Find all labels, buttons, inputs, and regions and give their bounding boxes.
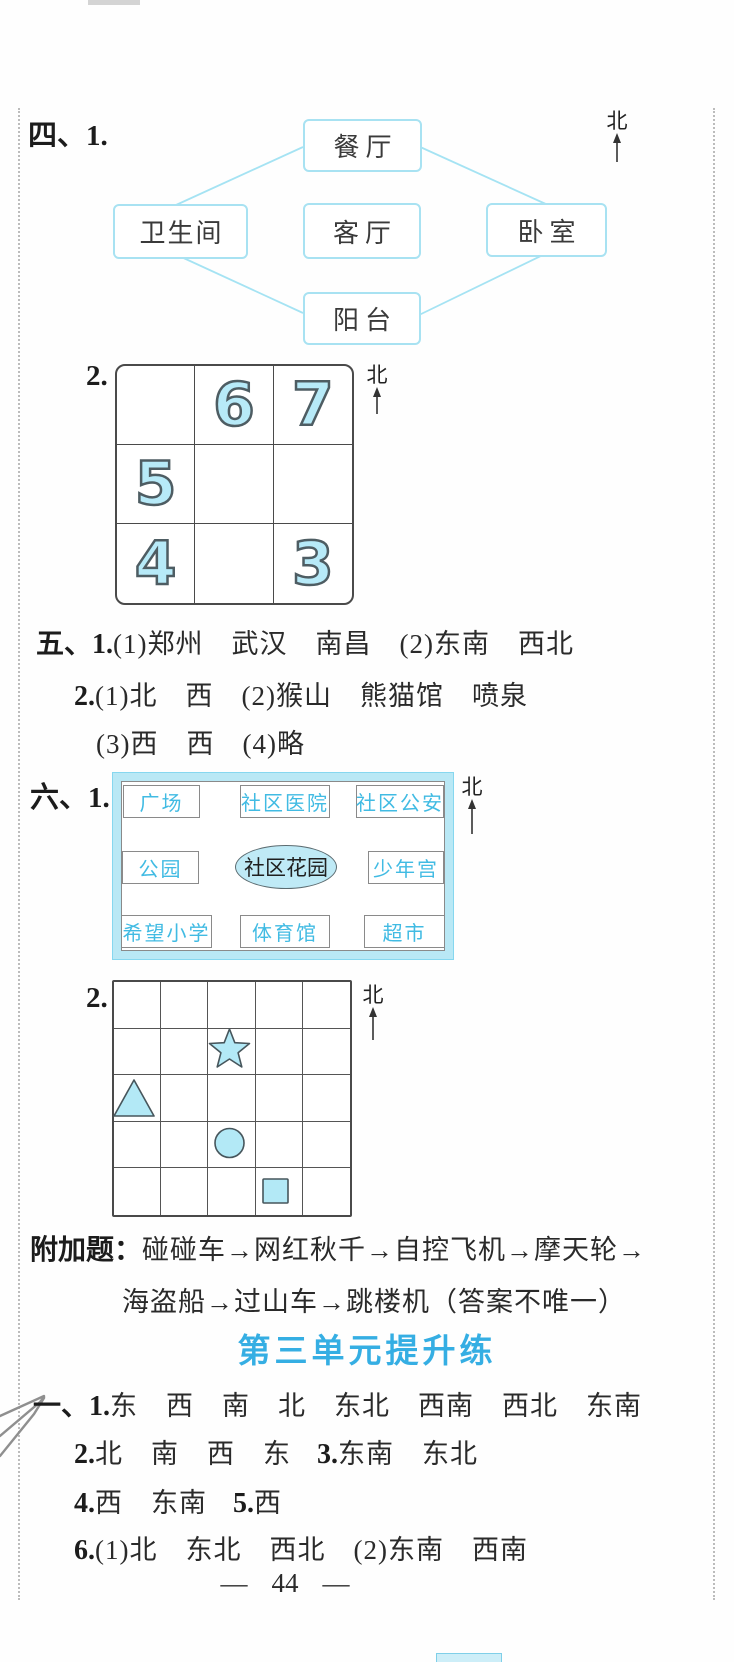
north-arrow-icon <box>365 1006 381 1042</box>
cell-value: 7 <box>292 375 334 435</box>
room-box-bedroom: 卧室 <box>486 203 607 257</box>
item2-label: 2. <box>86 360 108 393</box>
answer-line: 一、1.东 西 南 北 东北 西南 西北 东南 <box>33 1384 642 1424</box>
answer-line: 2.(1)北 西 (2)猴山 熊猫馆 喷泉 <box>74 674 528 713</box>
left-margin-dashed-line <box>18 108 20 1600</box>
map-place-gym: 体育馆 <box>240 915 330 948</box>
answer-number: 2. <box>74 1439 95 1470</box>
answer-text: (3)西 西 (4)略 <box>96 729 305 759</box>
compass-north-4: 北 <box>356 984 390 1042</box>
map-place-square: 广场 <box>123 785 200 818</box>
answer-text: 东南 东北 <box>338 1439 478 1469</box>
footer-dash-right: — <box>323 1568 350 1598</box>
grid-cell <box>303 1029 350 1076</box>
grid-cell <box>114 1075 161 1122</box>
place-label: 公园 <box>139 853 183 882</box>
answer-number: 一、1. <box>33 1391 110 1422</box>
map-place-police: 社区公安 <box>356 785 444 818</box>
compass-north-3: 北 <box>455 776 489 836</box>
map-place-supermarket: 超市 <box>364 915 445 948</box>
place-label: 体育馆 <box>252 917 318 946</box>
answer-line: 6.(1)北 东北 西北 (2)东南 西南 <box>74 1528 528 1567</box>
next-page-edge-artifact <box>436 1653 502 1662</box>
answer-line: 五、1.(1)郑州 武汉 南昌 (2)东南 西北 <box>36 622 574 662</box>
grid-cell: 7 <box>274 366 352 445</box>
map-place-youth-palace: 少年宫 <box>368 851 444 884</box>
grid-cell <box>303 1168 350 1215</box>
grid-cell: 4 <box>117 524 195 603</box>
room-label: 餐厅 <box>327 127 397 164</box>
room-label: 客厅 <box>327 213 397 250</box>
bonus-line-1: 附加题：碰碰车→网红秋千→自控飞机→摩天轮→ <box>30 1228 646 1268</box>
grid-cell <box>195 524 273 603</box>
grid-cell <box>114 982 161 1029</box>
grid-cell <box>161 1075 208 1122</box>
place-label: 广场 <box>140 787 184 816</box>
grid-cell <box>114 1029 161 1076</box>
answer-number: 3. <box>317 1439 338 1470</box>
grid-cell <box>117 366 195 445</box>
grid-cell <box>161 1122 208 1169</box>
answer-line: (3)西 西 (4)略 <box>96 722 305 761</box>
grid-cell <box>303 1075 350 1122</box>
place-label: 社区花园 <box>244 852 328 882</box>
cell-value: 4 <box>135 534 177 594</box>
answer-number: 4. <box>74 1488 95 1519</box>
unit3-heading: 第三单元提升练 <box>0 1324 734 1372</box>
grid-cell <box>303 982 350 1029</box>
grid-cell <box>256 1075 303 1122</box>
grid-cell <box>274 445 352 524</box>
bonus-line-2: 海盗船→过山车→跳楼机（答案不唯一） <box>122 1280 626 1319</box>
room-box-dining: 餐厅 <box>303 119 422 172</box>
answer-number: 五、1. <box>36 629 113 660</box>
place-label: 社区公安 <box>356 787 444 816</box>
answer-text: 东 西 南 北 东北 西南 西北 东南 <box>110 1391 642 1421</box>
answer-text: 西 <box>254 1488 282 1518</box>
grid-cell: 5 <box>117 445 195 524</box>
place-label: 超市 <box>383 917 427 946</box>
page-number: 44 <box>272 1568 299 1598</box>
grid-cell <box>256 1122 303 1169</box>
compass-north-1: 北 <box>600 110 634 164</box>
map-place-hospital: 社区医院 <box>240 785 330 818</box>
answer-text: 碰碰车→网红秋千→自控飞机→摩天轮→ <box>142 1235 646 1265</box>
north-arrow-icon <box>464 798 480 836</box>
grid-cell <box>208 1029 255 1076</box>
bonus-label: 附加题： <box>30 1235 142 1266</box>
right-margin-dashed-line <box>713 108 715 1600</box>
grid-cell <box>208 1168 255 1215</box>
grid-cell <box>114 1122 161 1169</box>
answer-text: (1)北 东北 西北 (2)东南 西南 <box>95 1535 528 1565</box>
map-place-park: 公园 <box>122 851 199 884</box>
room-label: 卧室 <box>511 212 581 249</box>
answer-line: 2.北 南 西 东3.东南 东北 <box>74 1432 478 1471</box>
answer-text: (1)郑州 武汉 南昌 (2)东南 西北 <box>113 629 574 659</box>
scan-smudge <box>88 0 140 5</box>
room-box-balcony: 阳台 <box>303 292 421 345</box>
grid-cell <box>161 1168 208 1215</box>
item2-label: 2. <box>86 982 108 1015</box>
north-label: 北 <box>462 776 483 798</box>
map-place-school: 希望小学 <box>121 915 212 948</box>
page-footer: —44— <box>60 1568 510 1599</box>
grid-cell <box>256 1029 303 1076</box>
north-arrow-icon <box>369 386 385 416</box>
cell-value: 5 <box>135 454 177 514</box>
north-label: 北 <box>607 110 628 132</box>
footer-dash-left: — <box>221 1568 248 1598</box>
shape-grid-5x5 <box>112 980 352 1217</box>
room-label: 阳台 <box>327 300 397 337</box>
answer-number: 6. <box>74 1535 95 1566</box>
grid-cell <box>208 1075 255 1122</box>
number-grid-3x3: 6 7 5 4 3 <box>115 364 354 605</box>
answer-key-page: 四、1. 餐厅 卫生间 客厅 卧室 阳台 北 2. 6 7 5 4 3 北 <box>0 0 734 1662</box>
grid-cell <box>195 445 273 524</box>
place-label: 社区医院 <box>241 787 329 816</box>
grid-cell: 3 <box>274 524 352 603</box>
answer-line: 4.西 东南5.西 <box>74 1481 282 1520</box>
grid-cell <box>256 982 303 1029</box>
room-box-bathroom: 卫生间 <box>113 204 248 259</box>
answer-text: (1)北 西 (2)猴山 熊猫馆 喷泉 <box>95 681 528 711</box>
cell-value: 3 <box>292 534 334 594</box>
answer-number: 2. <box>74 681 95 712</box>
north-label: 北 <box>363 984 384 1006</box>
grid-cell <box>161 982 208 1029</box>
grid-cell <box>161 1029 208 1076</box>
grid-cell <box>256 1168 303 1215</box>
answer-text: 西 东南 <box>95 1488 207 1518</box>
grid-cell <box>208 1122 255 1169</box>
compass-north-2: 北 <box>360 364 394 416</box>
section-six-label: 六、1. <box>30 774 110 816</box>
north-arrow-icon <box>609 132 625 164</box>
grid-cell <box>208 982 255 1029</box>
north-label: 北 <box>367 364 388 386</box>
cell-value: 6 <box>213 375 255 435</box>
room-label: 卫生间 <box>137 213 223 250</box>
grid-cell <box>303 1122 350 1169</box>
map-place-garden: 社区花园 <box>235 845 337 889</box>
grid-cell <box>114 1168 161 1215</box>
answer-text: 海盗船→过山车→跳楼机（答案不唯一） <box>122 1287 626 1317</box>
grid-cell: 6 <box>195 366 273 445</box>
answer-text: 北 南 西 东 <box>95 1439 291 1469</box>
place-label: 希望小学 <box>123 917 211 946</box>
section-four-label: 四、1. <box>28 112 108 154</box>
place-label: 少年宫 <box>373 853 439 882</box>
answer-number: 5. <box>233 1488 254 1519</box>
room-box-livingroom: 客厅 <box>303 203 421 259</box>
